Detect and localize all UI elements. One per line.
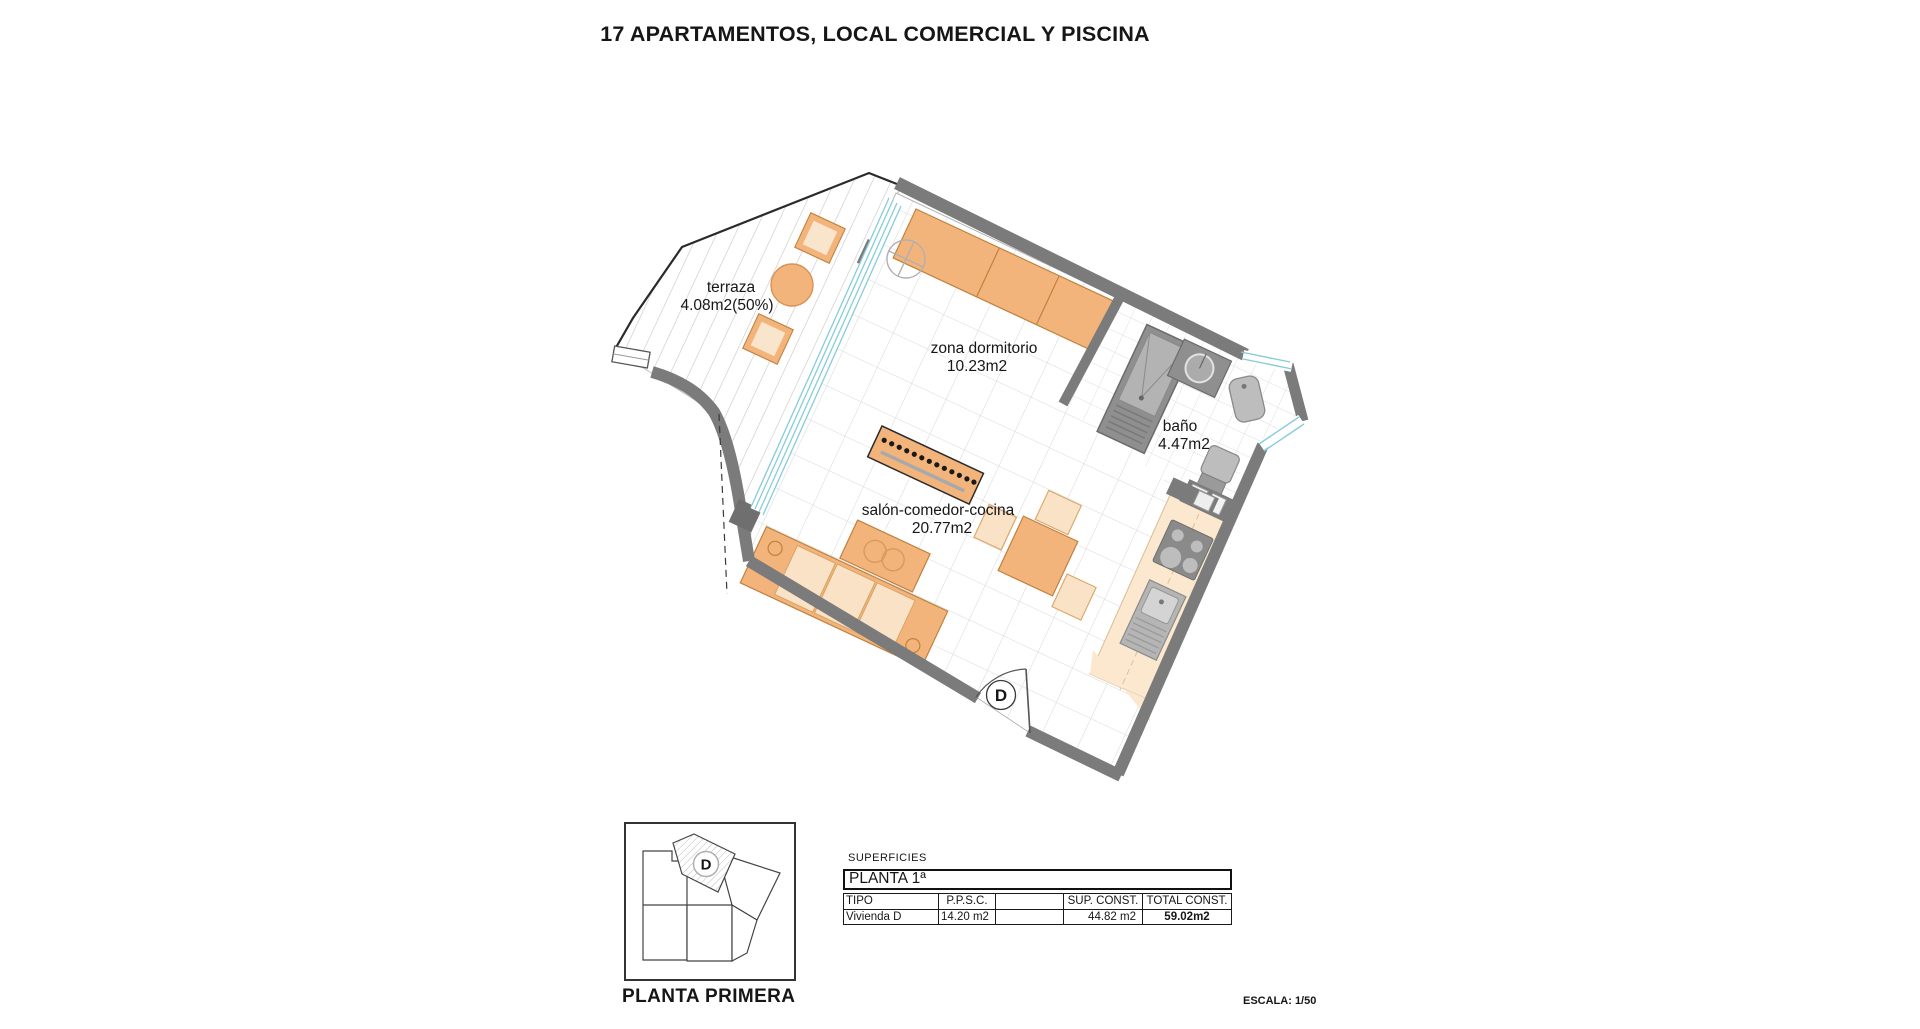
label-salon-area: 20.77m2 [912,520,972,537]
col-tipo: TIPO [843,894,938,909]
col-total-const: TOTAL CONST. [1142,894,1232,909]
label-terraza: terraza [707,279,756,296]
surfaces-table: TIPO P.P.S.C. SUP. CONST. TOTAL CONST. V… [843,893,1232,925]
col-ppsc: P.P.S.C. [938,894,995,909]
surfaces-table-header: TIPO P.P.S.C. SUP. CONST. TOTAL CONST. [843,894,1232,910]
surfaces-table-row: Vivienda D 14.20 m2 44.82 m2 59.02m2 [843,910,1232,925]
cell-ppsc: 14.20 m2 [938,910,995,925]
key-plan-caption: PLANTA PRIMERA [622,986,795,1007]
label-bano: baño [1163,418,1197,435]
cell-tipo: Vivienda D [843,910,938,925]
col-sup-const: SUP. CONST. [1063,894,1142,909]
surfaces-section-label: SUPERFICIES [848,852,927,864]
col-empty [995,894,1063,909]
drawing-sheet: 17 APARTAMENTOS, LOCAL COMERCIAL Y PISCI… [0,0,1920,1024]
label-dormitorio: zona dormitorio [931,340,1038,357]
label-salon: salón-comedor-cocina [862,502,1015,519]
cell-empty [995,910,1063,925]
key-plan-unit-label: D [701,857,712,874]
cell-total-const: 59.02m2 [1142,910,1232,925]
cell-sup-const: 44.82 m2 [1063,910,1142,925]
label-dormitorio-area: 10.23m2 [947,358,1007,375]
terrace-table [771,264,813,306]
label-terraza-area: 4.08m2(50%) [680,297,773,314]
key-plan: D PLANTA PRIMERA [622,823,795,1007]
label-bano-area: 4.47m2 [1158,436,1210,453]
floor-label-box: PLANTA 1ª [843,869,1232,890]
sheet-title: 17 APARTAMENTOS, LOCAL COMERCIAL Y PISCI… [600,22,1150,46]
scale-label: ESCALA: 1/50 [1243,995,1316,1007]
unit-label: D [995,686,1007,705]
